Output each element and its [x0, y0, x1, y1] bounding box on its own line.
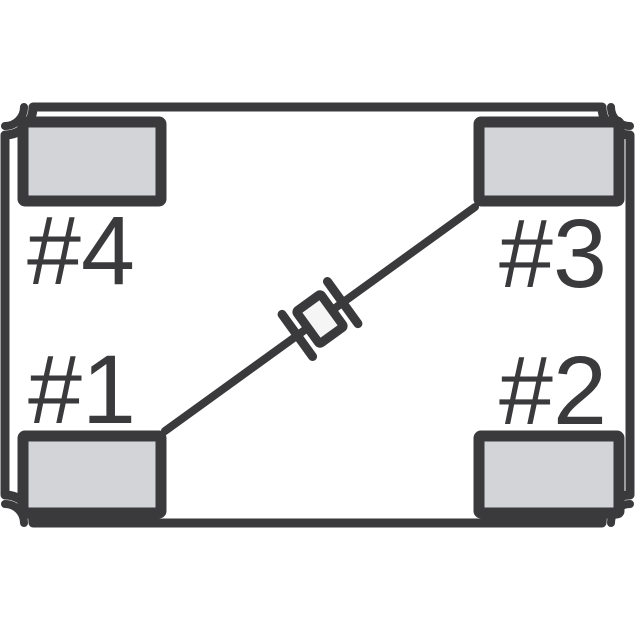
- pad-1: [23, 436, 161, 513]
- diagram-canvas: #4 #3 #1 #2: [0, 0, 640, 640]
- crystal-package-pinout-diagram: #4 #3 #1 #2: [0, 0, 640, 640]
- pad-4: [23, 122, 161, 201]
- pad-label-2: #2: [499, 336, 607, 445]
- pad-label-1: #1: [28, 335, 136, 444]
- pad-label-3: #3: [499, 199, 607, 308]
- pad-3: [479, 122, 619, 201]
- pad-label-4: #4: [27, 196, 135, 305]
- pad-2: [479, 436, 619, 513]
